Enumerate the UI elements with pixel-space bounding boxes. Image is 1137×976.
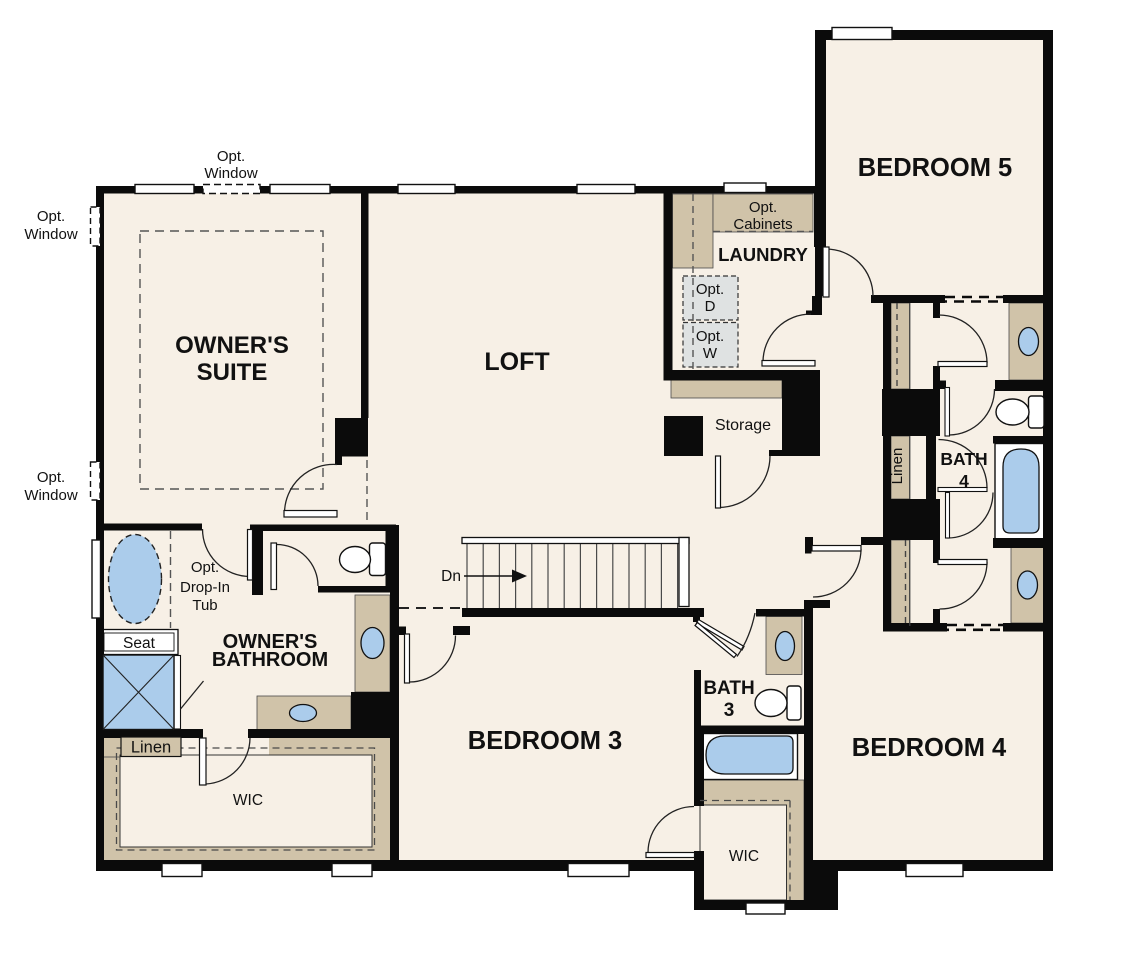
svg-text:Linen: Linen (889, 448, 906, 485)
svg-text:Seat: Seat (123, 635, 156, 652)
svg-text:LOFT: LOFT (484, 348, 549, 376)
svg-text:Window: Window (24, 487, 78, 504)
svg-text:Dn: Dn (441, 568, 461, 585)
svg-text:Opt.: Opt. (217, 148, 245, 165)
svg-text:Tub: Tub (192, 597, 217, 614)
svg-text:OWNER'S: OWNER'S (175, 332, 289, 359)
svg-text:D: D (705, 298, 716, 315)
svg-text:Opt.: Opt. (37, 469, 65, 486)
svg-text:LAUNDRY: LAUNDRY (718, 244, 808, 265)
svg-text:Opt.: Opt. (37, 208, 65, 225)
svg-text:WIC: WIC (233, 792, 263, 809)
svg-text:Window: Window (204, 165, 258, 182)
svg-text:Opt.: Opt. (191, 559, 219, 576)
svg-text:4: 4 (959, 471, 969, 491)
svg-text:WIC: WIC (729, 848, 759, 865)
svg-text:BEDROOM 4: BEDROOM 4 (852, 734, 1007, 762)
svg-text:W: W (703, 345, 718, 362)
svg-text:Storage: Storage (715, 417, 771, 434)
svg-text:Window: Window (24, 226, 78, 243)
svg-text:Linen: Linen (131, 739, 171, 757)
svg-text:SUITE: SUITE (197, 359, 268, 386)
svg-text:BEDROOM 5: BEDROOM 5 (858, 154, 1012, 182)
svg-text:BATH: BATH (703, 678, 754, 699)
svg-text:Drop-In: Drop-In (180, 579, 230, 596)
svg-text:BEDROOM 3: BEDROOM 3 (468, 727, 622, 755)
svg-text:Opt.: Opt. (749, 199, 777, 216)
svg-text:3: 3 (724, 700, 735, 721)
svg-text:Opt.: Opt. (696, 281, 724, 298)
svg-text:Opt.: Opt. (696, 328, 724, 345)
svg-text:Cabinets: Cabinets (733, 216, 792, 233)
svg-text:BATH: BATH (940, 449, 987, 469)
svg-text:BATHROOM: BATHROOM (212, 649, 328, 671)
